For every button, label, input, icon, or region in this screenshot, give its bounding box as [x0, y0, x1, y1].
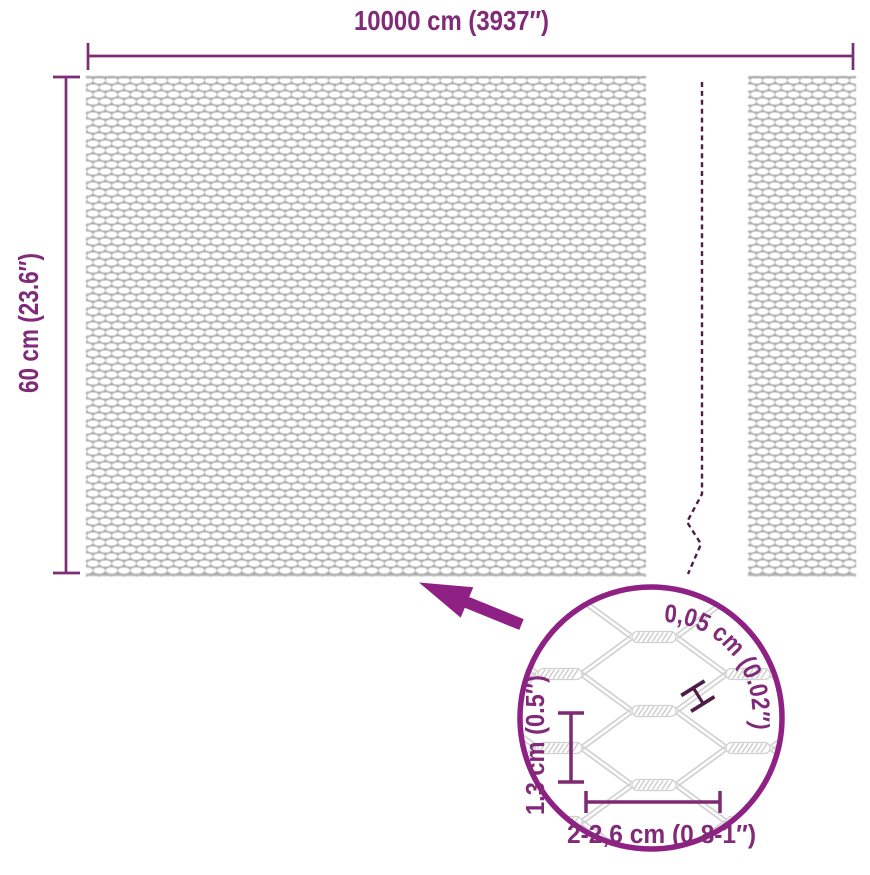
svg-text:60 cm (23.6″): 60 cm (23.6″) — [13, 253, 44, 393]
svg-text:10000 cm (3937″): 10000 cm (3937″) — [354, 5, 549, 36]
svg-text:2-2,6 cm (0.8-1″): 2-2,6 cm (0.8-1″) — [567, 821, 756, 849]
svg-text:1,3 cm (0.5″): 1,3 cm (0.5″) — [522, 675, 550, 815]
